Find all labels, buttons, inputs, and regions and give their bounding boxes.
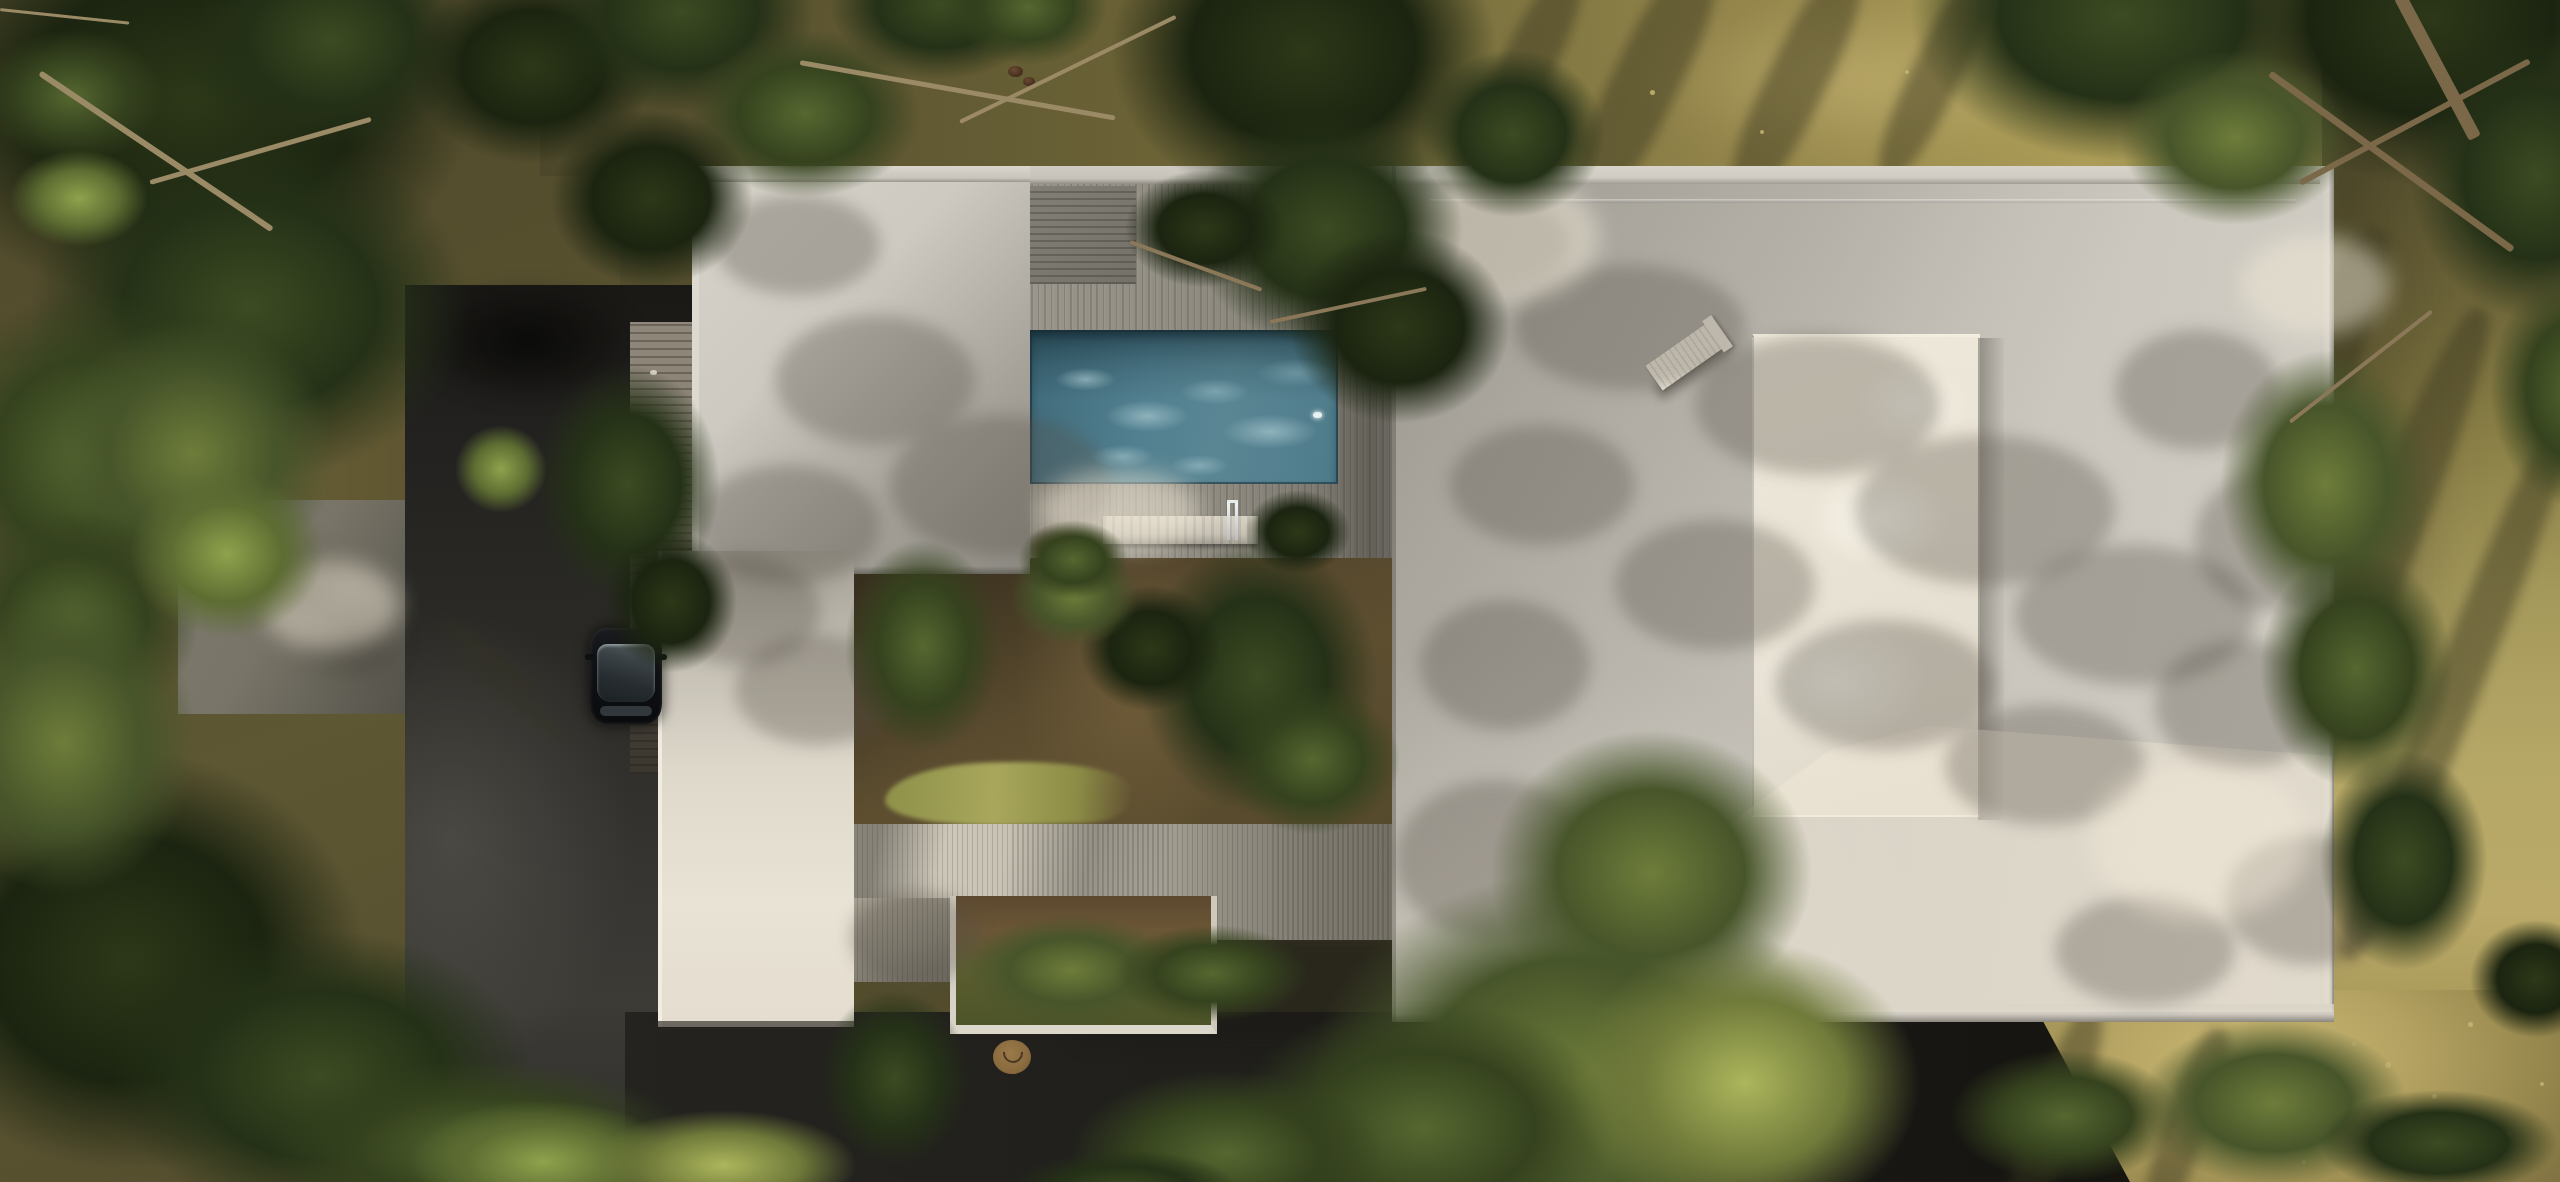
tree-branch: [1129, 240, 1262, 292]
tree-branch: [2289, 310, 2433, 424]
tree-branch: [1270, 287, 1427, 324]
tree-branch-layer: [0, 0, 2560, 1182]
tree-branch: [149, 117, 371, 185]
aerial-house-photo: Top-down aerial drone photograph of a mi…: [0, 0, 2560, 1182]
tree-branch: [2394, 0, 2481, 141]
tree-branch: [38, 71, 273, 233]
tree-branch: [0, 8, 129, 25]
tree-branch: [2268, 71, 2515, 253]
